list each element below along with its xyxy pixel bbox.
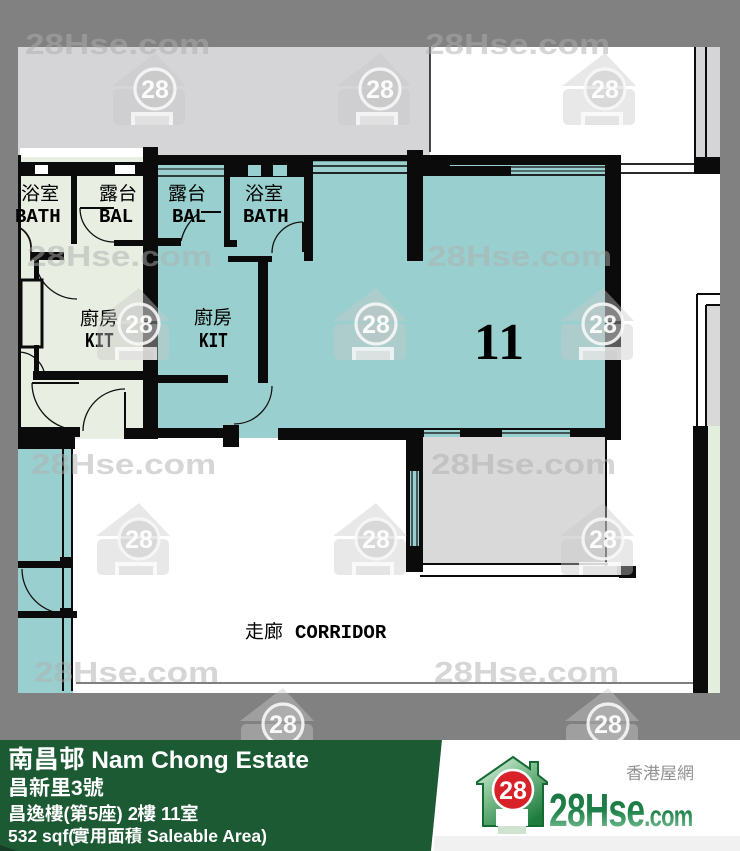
svg-text:28: 28	[499, 777, 527, 805]
svg-text:28: 28	[125, 311, 153, 339]
svg-text:28Hse.com: 28Hse.com	[431, 448, 616, 480]
svg-text:28Hse.com: 28Hse.com	[34, 656, 219, 688]
svg-text:CORRIDOR: CORRIDOR	[295, 622, 387, 644]
svg-text:28Hse.com: 28Hse.com	[425, 28, 610, 60]
svg-text:(: (	[64, 803, 71, 824]
svg-text:28Hse.com: 28Hse.com	[434, 656, 619, 688]
svg-text:28Hse.com: 28Hse.com	[27, 240, 212, 272]
svg-text:28: 28	[125, 526, 153, 554]
svg-text:532 sqf(: 532 sqf(	[8, 826, 74, 846]
svg-text:BAL: BAL	[99, 206, 133, 228]
svg-text:BATH: BATH	[15, 206, 61, 228]
svg-text:BATH: BATH	[243, 206, 289, 228]
svg-text:28: 28	[589, 311, 617, 339]
svg-text:11: 11	[474, 314, 525, 371]
svg-text:3: 3	[71, 777, 83, 800]
svg-text:) 2: ) 2	[117, 803, 139, 824]
svg-text:28: 28	[589, 526, 617, 554]
svg-text:28: 28	[591, 76, 619, 104]
svg-text:28: 28	[366, 76, 394, 104]
svg-text:11: 11	[161, 803, 181, 824]
svg-text:28: 28	[141, 76, 169, 104]
svg-text:28Hse.com: 28Hse.com	[25, 28, 210, 60]
svg-text:28: 28	[362, 526, 390, 554]
svg-text:28Hse.com: 28Hse.com	[427, 240, 612, 272]
svg-text:BAL: BAL	[172, 206, 206, 228]
svg-text:Nam Chong Estate: Nam Chong Estate	[91, 747, 309, 774]
svg-text:28: 28	[362, 311, 390, 339]
svg-text:28: 28	[269, 711, 297, 739]
svg-text:Saleable Area): Saleable Area)	[147, 826, 267, 846]
svg-text:28: 28	[594, 711, 622, 739]
svg-text:28Hse.com: 28Hse.com	[31, 448, 216, 480]
svg-text:KIT: KIT	[199, 329, 228, 354]
svg-text:5: 5	[88, 803, 98, 824]
